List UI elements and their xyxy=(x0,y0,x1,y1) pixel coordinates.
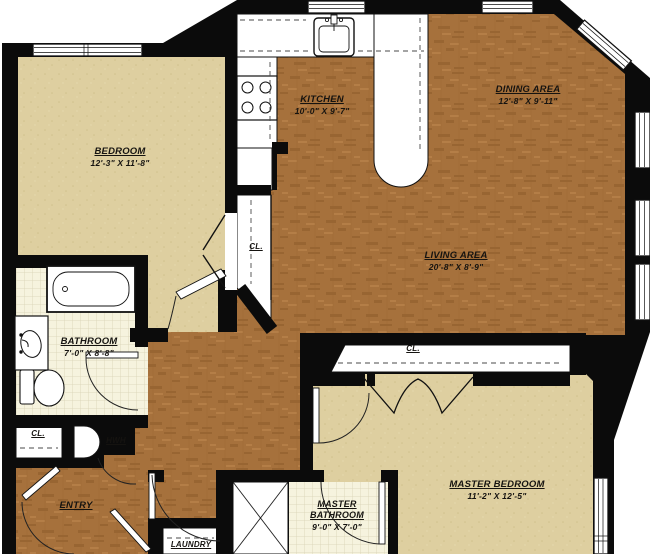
bedroom-window xyxy=(33,44,142,56)
room-dims: 7'-0" X 8'-8" xyxy=(61,348,118,359)
master-closet xyxy=(331,345,570,372)
bathtub-fixture xyxy=(47,266,135,312)
room-label-master-bedroom: MASTER BEDROOM 11'-2" X 12'-5" xyxy=(449,479,544,502)
master-bedroom-window xyxy=(594,478,608,554)
room-label-entry: ENTRY xyxy=(59,500,92,512)
kitchen-counter-lower xyxy=(237,148,272,190)
kitchen-window xyxy=(308,1,365,13)
room-dims: 10'-0" X 9'-7" xyxy=(295,106,350,117)
room-dims: 11'-2" X 12'-5" xyxy=(449,491,544,502)
water-heater-tank xyxy=(74,426,100,458)
room-name: MASTER BATHROOM xyxy=(310,499,364,520)
label-closet-entry: CL. xyxy=(31,429,45,439)
room-dims: 12'-8" X 9'-11" xyxy=(496,96,561,107)
bedroom-closet-opening xyxy=(225,213,237,290)
room-name: BATHROOM xyxy=(61,336,118,347)
kitchen-sink-fixture xyxy=(314,15,354,56)
stove-fixture xyxy=(237,76,277,120)
room-name: BEDROOM xyxy=(94,146,145,157)
room-label-kitchen: KITCHEN 10'-0" X 9'-7" xyxy=(295,94,350,117)
room-label-dining: DINING AREA 12'-8" X 9'-11" xyxy=(496,84,561,107)
room-name: DINING AREA xyxy=(496,84,561,95)
label-water-heater: HWH xyxy=(106,436,126,446)
room-label-bedroom: BEDROOM 12'-3" X 11'-8" xyxy=(91,146,150,169)
room-name: ENTRY xyxy=(59,500,92,511)
room-label-living: LIVING AREA 20'-8" X 8'-9" xyxy=(424,250,487,273)
room-dims: 20'-8" X 8'-9" xyxy=(424,262,487,273)
side-window-3 xyxy=(635,264,650,320)
room-name: LAUNDRY xyxy=(171,540,211,549)
room-label-master-bathroom: MASTER BATHROOM 9'-0" X 7'-0" xyxy=(305,499,369,532)
bathroom-sink-fixture xyxy=(15,316,48,370)
room-name: MASTER BEDROOM xyxy=(449,479,544,490)
room-label-laundry: LAUNDRY xyxy=(171,540,211,550)
room-label-bathroom: BATHROOM 7'-0" X 8'-8" xyxy=(61,336,118,359)
label-closet-master: CL. xyxy=(406,344,420,354)
room-dims: 12'-3" X 11'-8" xyxy=(91,158,150,169)
toilet-fixture xyxy=(20,370,64,406)
room-dims: 9'-0" X 7'-0" xyxy=(305,522,369,533)
dining-window xyxy=(482,1,533,13)
floor-plan: BEDROOM 12'-3" X 11'-8" KITCHEN 10'-0" X… xyxy=(0,0,650,554)
side-window-2 xyxy=(635,200,650,256)
room-name: KITCHEN xyxy=(300,94,344,105)
room-name: LIVING AREA xyxy=(424,250,487,261)
side-window-1 xyxy=(635,112,650,168)
label-closet-hall: CL. xyxy=(249,242,263,252)
